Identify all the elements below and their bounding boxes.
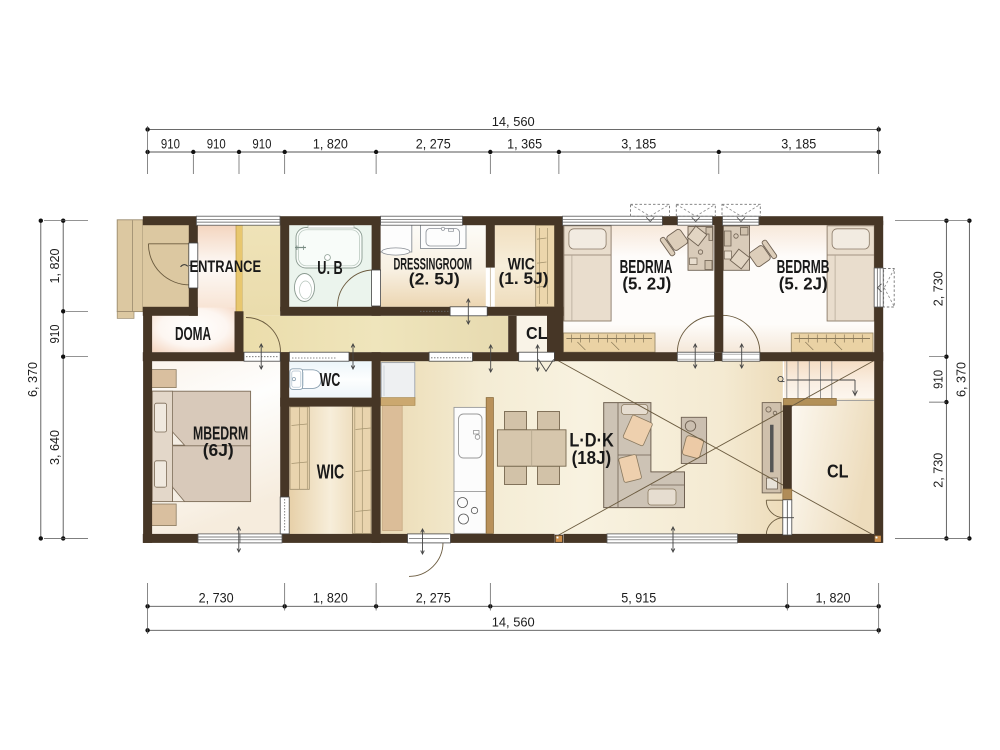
svg-text:(5. 2J): (5. 2J) [779,273,828,293]
svg-text:ENTRANCE: ENTRANCE [190,257,261,276]
svg-text:CL: CL [827,462,849,482]
svg-text:(2. 5J): (2. 5J) [409,271,460,289]
svg-text:3, 640: 3, 640 [47,430,62,465]
svg-text:CL: CL [526,323,548,343]
svg-text:1, 820: 1, 820 [47,249,62,284]
svg-text:5, 915: 5, 915 [621,591,656,606]
svg-text:1, 365: 1, 365 [507,136,542,151]
svg-text:6, 370: 6, 370 [953,362,968,397]
svg-text:3, 185: 3, 185 [781,136,816,151]
svg-text:3, 185: 3, 185 [621,136,656,151]
svg-text:910: 910 [207,136,226,151]
svg-text:2, 730: 2, 730 [199,591,234,606]
svg-text:WC: WC [320,369,341,390]
svg-text:6, 370: 6, 370 [25,362,40,397]
svg-text:(1. 5J): (1. 5J) [499,270,549,288]
svg-text:(6J): (6J) [203,440,234,460]
svg-text:(18J): (18J) [572,448,612,468]
svg-text:2, 275: 2, 275 [416,136,451,151]
svg-text:2, 730: 2, 730 [930,271,945,306]
svg-text:(5. 2J): (5. 2J) [622,273,671,293]
svg-text:910: 910 [252,136,271,151]
svg-text:910: 910 [47,325,62,344]
svg-text:2, 730: 2, 730 [930,453,945,488]
svg-text:910: 910 [161,136,180,151]
svg-text:U. B: U. B [317,258,343,278]
svg-text:2, 275: 2, 275 [416,591,451,606]
svg-text:14, 560: 14, 560 [492,615,535,630]
svg-text:1, 820: 1, 820 [313,591,348,606]
svg-text:910: 910 [930,370,945,389]
svg-text:DOMA: DOMA [175,323,211,344]
svg-text:14, 560: 14, 560 [492,114,535,129]
svg-text:WIC: WIC [317,462,345,484]
svg-text:1, 820: 1, 820 [313,136,348,151]
svg-text:1, 820: 1, 820 [816,591,851,606]
